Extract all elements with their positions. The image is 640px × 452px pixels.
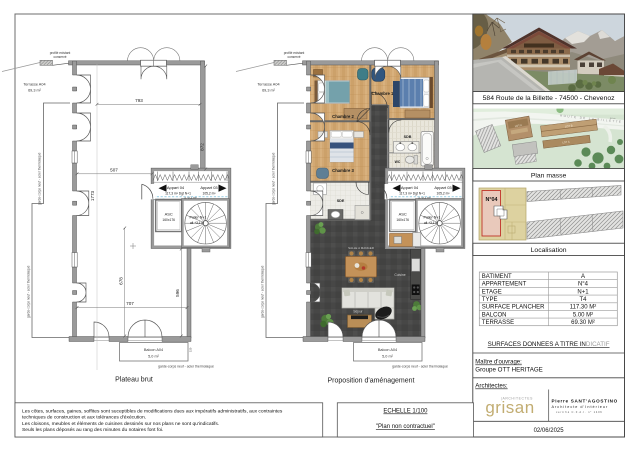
svg-text:SDE: SDE <box>337 199 345 203</box>
svg-text:SALLE A MANGER: SALLE A MANGER <box>348 246 375 250</box>
svg-text:Chambre 2: Chambre 2 <box>332 114 354 119</box>
svg-text:Plan masse: Plan masse <box>531 172 567 179</box>
svg-text:Pierre SANT'AGOSTINO: Pierre SANT'AGOSTINO <box>552 399 618 404</box>
svg-text:Les côtes, surfaces, gaines, s: Les côtes, surfaces, gaines, soffites so… <box>22 409 283 415</box>
svg-text:596: 596 <box>175 289 180 297</box>
svg-text:69.30 M²: 69.30 M² <box>571 320 595 326</box>
svg-text:Groupe OTT HERITAGE: Groupe OTT HERITAGE <box>475 367 543 374</box>
svg-text:872: 872 <box>199 143 204 151</box>
svg-text:certifié C.F.A.I. n° 1406: certifié C.F.A.I. n° 1406 <box>556 410 603 414</box>
svg-text:ETAGE: ETAGE <box>482 289 502 295</box>
svg-text:BATIMENT: BATIMENT <box>482 274 512 280</box>
svg-text:Architectes:: Architectes: <box>475 383 508 390</box>
svg-text:TYPE: TYPE <box>482 297 498 303</box>
svg-text:N°04: N°04 <box>485 197 497 203</box>
svg-text:507: 507 <box>110 168 118 173</box>
svg-text:Cuisine: Cuisine <box>394 273 405 277</box>
svg-text:TERRASSE: TERRASSE <box>482 320 514 326</box>
svg-text:N°4: N°4 <box>578 282 589 288</box>
svg-text:Localisation: Localisation <box>531 247 567 254</box>
svg-text:Plateau brut: Plateau brut <box>115 377 153 384</box>
svg-text:02/06/2025: 02/06/2025 <box>534 428 565 434</box>
svg-text:Architecte d'Intérieur: Architecte d'Intérieur <box>552 405 609 409</box>
svg-text:T4: T4 <box>579 297 587 303</box>
svg-text:BALCON: BALCON <box>482 312 507 318</box>
svg-text:Séjour: Séjour <box>353 310 363 314</box>
svg-text:SURFACES DONNEES A TITRE INDIC: SURFACES DONNEES A TITRE INDICATIF <box>488 341 610 348</box>
svg-text:techniques de construction et: techniques de construction et aux toléra… <box>22 414 146 420</box>
svg-text:Les cloisons, meubles et éléme: Les cloisons, meubles et éléments de cui… <box>22 421 219 427</box>
svg-text:84 rte: 84 rte <box>610 117 616 120</box>
svg-text:5.00 M²: 5.00 M² <box>573 312 593 318</box>
svg-text:150: 150 <box>189 347 193 352</box>
svg-text:SURFACE PLANCHER: SURFACE PLANCHER <box>482 305 545 311</box>
svg-text:"Plan non contractuel": "Plan non contractuel" <box>376 424 435 430</box>
svg-text:678: 678 <box>118 277 123 285</box>
svg-text:Chambre 1: Chambre 1 <box>372 91 394 96</box>
svg-text:Proposition d'aménagement: Proposition d'aménagement <box>328 378 415 385</box>
svg-text:grisan: grisan <box>485 398 534 417</box>
svg-text:Chambre 3: Chambre 3 <box>332 168 354 173</box>
svg-text:1773: 1773 <box>90 190 95 201</box>
svg-text:N+1: N+1 <box>577 289 589 295</box>
svg-text:117.30 M²: 117.30 M² <box>570 305 597 311</box>
svg-text:Maître d'ouvrage:: Maître d'ouvrage: <box>475 360 522 366</box>
svg-text:793: 793 <box>135 98 143 103</box>
svg-text:A: A <box>581 274 585 280</box>
svg-text:707: 707 <box>126 301 134 306</box>
svg-text:WC: WC <box>395 160 401 164</box>
svg-text:584 Route de la Billette - 745: 584 Route de la Billette - 74500 - Cheve… <box>483 95 615 102</box>
svg-text:APPARTEMENT: APPARTEMENT <box>482 282 527 288</box>
svg-text:ECHELLE 1/100: ECHELLE 1/100 <box>383 409 428 415</box>
svg-text:Seuls les plans déposés au ran: Seuls les plans déposés au rang des minu… <box>22 427 163 433</box>
svg-text:SDB: SDB <box>404 135 412 139</box>
